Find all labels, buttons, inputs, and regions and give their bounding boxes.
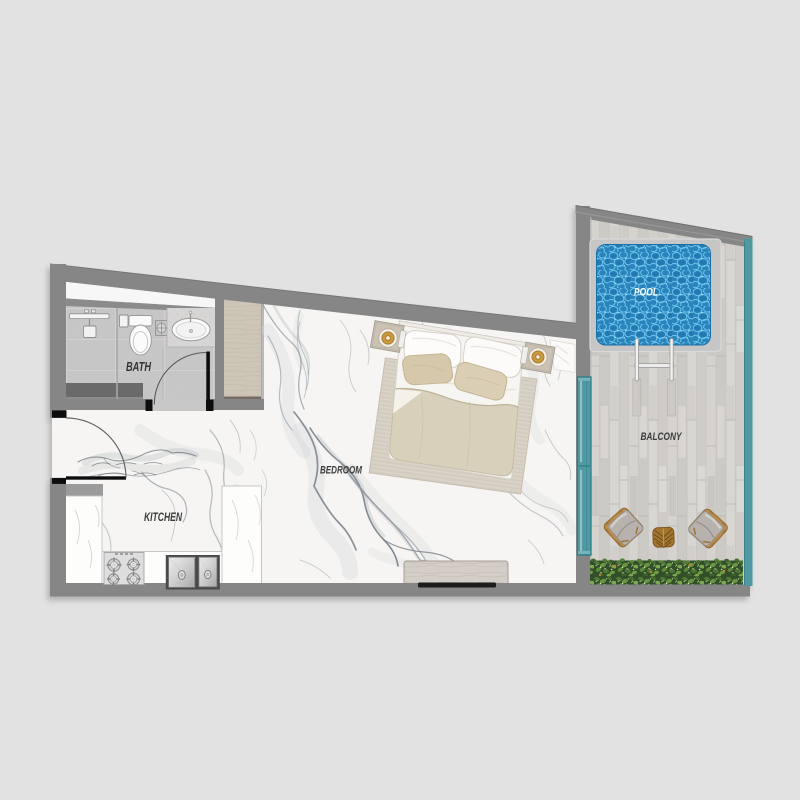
svg-text:BALCONY: BALCONY [641,431,683,443]
svg-text:POOL: POOL [634,287,658,299]
svg-text:BEDROOM: BEDROOM [320,465,363,477]
svg-text:KITCHEN: KITCHEN [144,510,182,524]
svg-text:BATH: BATH [126,360,152,374]
